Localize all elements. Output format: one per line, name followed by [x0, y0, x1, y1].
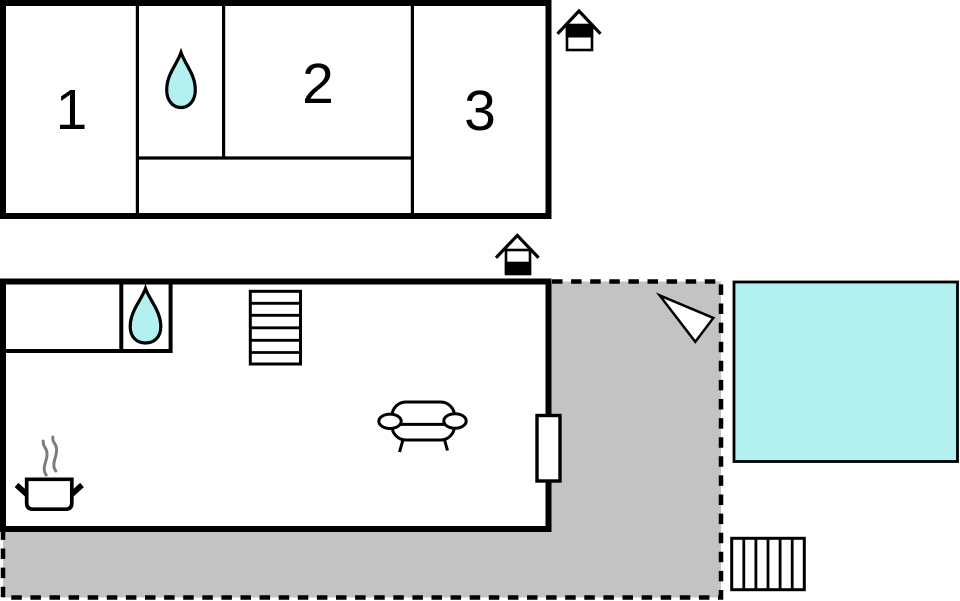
svg-text:2: 2: [302, 52, 334, 116]
svg-text:1: 1: [56, 78, 88, 142]
svg-text:3: 3: [464, 79, 496, 143]
